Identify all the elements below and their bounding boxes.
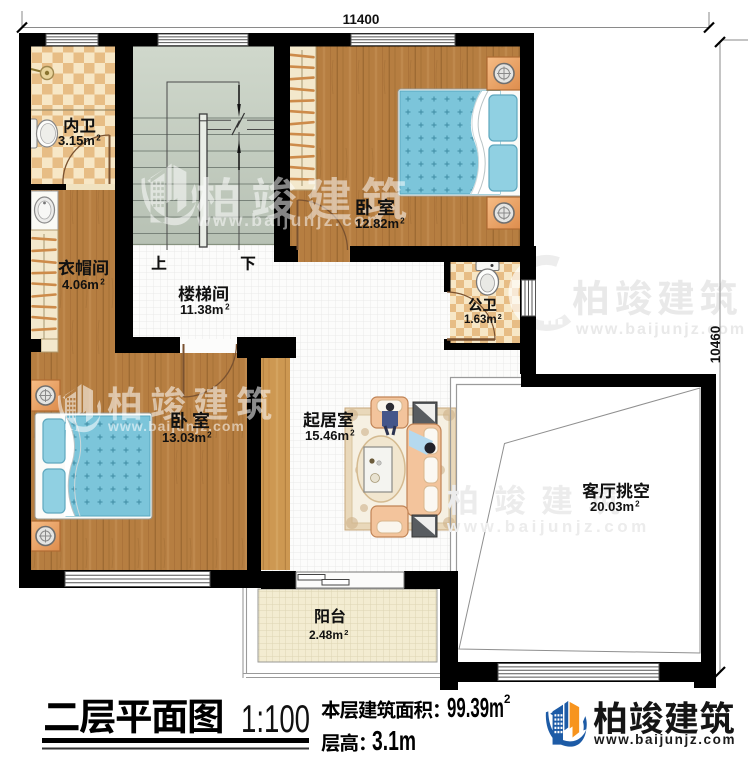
svg-text:11400: 11400: [343, 12, 380, 27]
svg-text:15.46m: 15.46m: [305, 428, 349, 443]
svg-text:3.1m: 3.1m: [372, 725, 416, 756]
svg-text:12.82m: 12.82m: [355, 216, 399, 231]
svg-text:99.39m: 99.39m: [447, 692, 504, 723]
svg-text:2: 2: [635, 499, 640, 508]
svg-text:13.03m: 13.03m: [162, 430, 206, 445]
svg-text:3.15m: 3.15m: [58, 133, 95, 148]
svg-text:2: 2: [350, 428, 355, 437]
svg-text:2: 2: [96, 133, 101, 142]
svg-text:2: 2: [225, 302, 230, 311]
svg-text:10460: 10460: [708, 326, 723, 364]
svg-text:2: 2: [100, 277, 105, 286]
svg-text:2: 2: [498, 313, 502, 321]
svg-text:www.baijunjz.com: www.baijunjz.com: [593, 732, 736, 747]
svg-text:2: 2: [344, 628, 348, 637]
svg-text:1:100: 1:100: [241, 698, 310, 741]
svg-text:2: 2: [400, 216, 405, 225]
svg-text:2: 2: [504, 694, 510, 706]
svg-text:2: 2: [207, 430, 212, 439]
svg-text:4.06m: 4.06m: [62, 277, 99, 292]
svg-text:20.03m: 20.03m: [590, 499, 634, 514]
svg-text:www.baijunjz.com: www.baijunjz.com: [446, 517, 650, 536]
svg-text:2.48m: 2.48m: [309, 628, 343, 642]
svg-text:1.63m: 1.63m: [464, 314, 497, 326]
svg-text:11.38m: 11.38m: [180, 302, 223, 317]
